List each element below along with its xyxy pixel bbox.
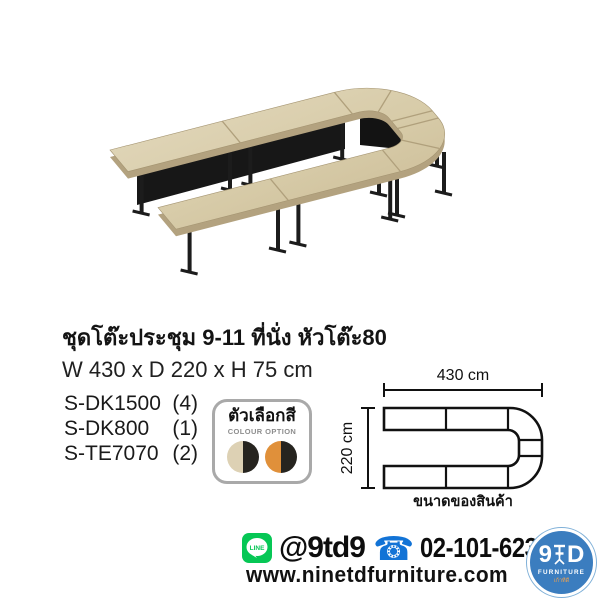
logo-subtitle: FURNITURE <box>538 569 585 576</box>
product-sheet: ชุดโต๊ะประชุม 9-11 ที่นั่ง หัวโต๊ะ80 W 4… <box>0 0 600 600</box>
product-dimensions: W 430 x D 220 x H 75 cm <box>62 357 313 383</box>
line-app-icon: LINE <box>242 533 272 563</box>
depth-dimension-label: 220 cm <box>339 422 356 474</box>
colour-option-box: ตัวเลือกสี COLOUR OPTION <box>212 399 312 484</box>
footer-contact: LINE @9td9 ☎ 02-101-6232 <box>242 531 573 565</box>
product-code-row: S-DK1500 (4) <box>64 391 198 416</box>
width-dimension-label: 430 cm <box>437 367 489 384</box>
colour-swatches <box>227 441 297 473</box>
product-code-row: S-TE7070 (2) <box>64 441 198 466</box>
swatch-orange-black <box>265 441 297 473</box>
logo-9: 9 <box>539 543 552 567</box>
product-qty: (4) <box>172 391 198 416</box>
website-url: www.ninetdfurniture.com <box>246 562 508 588</box>
office-chair-icon <box>553 544 566 566</box>
product-code: S-DK800 <box>64 416 149 441</box>
product-title: ชุดโต๊ะประชุม 9-11 ที่นั่ง หัวโต๊ะ80 <box>62 324 387 353</box>
logo-subtitle-th: เก้าทีดี <box>554 577 570 585</box>
swatch-oak-black <box>227 441 259 473</box>
line-id-text: @9td9 <box>279 531 365 565</box>
product-code-list: S-DK1500 (4) S-DK800 (1) S-TE7070 (2) <box>64 391 198 466</box>
colour-option-label-th: ตัวเลือกสี <box>228 406 296 426</box>
ninetd-logo: 9 D FURNITURE เก้าทีดี <box>527 528 596 597</box>
svg-text:LINE: LINE <box>250 545 265 552</box>
product-code: S-DK1500 <box>64 391 161 416</box>
product-code: S-TE7070 <box>64 441 159 466</box>
width-dimension-line <box>384 383 542 397</box>
product-render <box>0 0 600 320</box>
product-qty: (2) <box>172 441 198 466</box>
depth-dimension-line <box>361 408 375 488</box>
logo-name: 9 D <box>539 543 585 567</box>
product-code-row: S-DK800 (1) <box>64 416 198 441</box>
product-qty: (1) <box>172 416 198 441</box>
dimension-diagram: 430 cm 220 cm ขนาดของสินค้า <box>338 358 584 510</box>
logo-d: D <box>567 543 584 567</box>
diagram-outline <box>384 408 542 488</box>
colour-option-label-en: COLOUR OPTION <box>228 427 297 436</box>
diagram-caption: ขนาดของสินค้า <box>413 493 513 510</box>
phone-icon: ☎ <box>373 532 414 565</box>
